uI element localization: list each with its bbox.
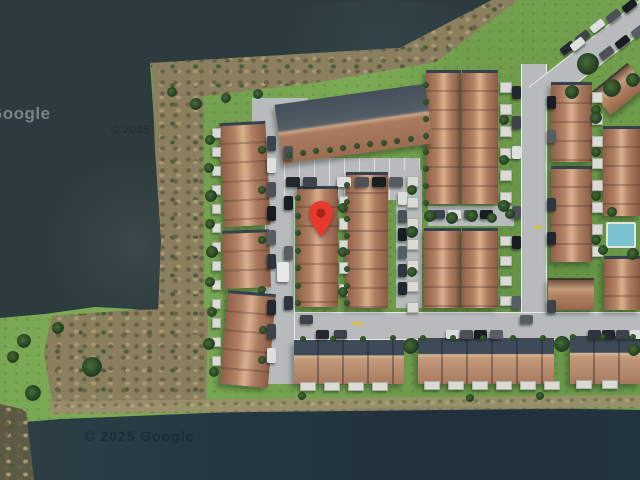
parked-car (303, 177, 317, 187)
parked-car (267, 230, 276, 245)
parked-car (512, 86, 521, 99)
utility-shed (592, 202, 603, 213)
palm-tree (591, 235, 601, 245)
parked-car (398, 264, 407, 277)
parked-car (398, 192, 407, 205)
palm-tree (499, 115, 509, 125)
palm-tree (17, 334, 31, 348)
parked-car (267, 348, 276, 363)
palm-tree (406, 226, 418, 238)
palm-tree (577, 53, 599, 75)
palm-tree (205, 219, 215, 229)
utility-shed (576, 380, 592, 389)
shrub (480, 335, 486, 341)
parked-car (547, 130, 556, 143)
parked-car (284, 246, 293, 260)
parked-car (547, 96, 556, 109)
utility-shed (592, 158, 603, 169)
palm-tree (259, 326, 267, 334)
shrub (295, 265, 301, 271)
palm-tree (253, 89, 263, 99)
parked-car (460, 330, 473, 339)
utility-shed (212, 261, 221, 271)
palm-tree (403, 338, 419, 354)
parked-car (267, 136, 276, 151)
shrub (423, 99, 429, 105)
utility-shed (592, 180, 603, 191)
townhouse-building (551, 166, 592, 262)
parked-car (398, 210, 407, 223)
palm-tree (7, 351, 19, 363)
parked-car (284, 296, 293, 310)
parked-car (588, 330, 601, 339)
parked-car (355, 177, 369, 187)
shrub (344, 182, 350, 188)
utility-shed (592, 224, 603, 235)
palm-tree (607, 207, 617, 217)
parked-car (616, 330, 629, 339)
palm-tree (627, 248, 639, 260)
townhouse-building (424, 228, 461, 308)
palm-tree (554, 336, 570, 352)
utility-shed (500, 276, 512, 286)
parked-car (547, 232, 556, 245)
palm-tree (167, 87, 177, 97)
palm-tree (207, 307, 217, 317)
townhouse-building (294, 340, 404, 384)
utility-shed (500, 296, 512, 306)
palm-tree (205, 277, 215, 287)
palm-tree (258, 186, 266, 194)
palm-tree (258, 286, 266, 294)
shrub (540, 335, 546, 341)
townhouse-building (603, 126, 640, 216)
shrub (300, 336, 306, 342)
parked-car (512, 146, 521, 159)
palm-tree (536, 392, 544, 400)
palm-tree (446, 212, 458, 224)
shrub (423, 116, 429, 122)
palm-tree (52, 322, 64, 334)
shrub (286, 152, 292, 158)
utility-shed (592, 92, 603, 103)
utility-shed (448, 381, 464, 390)
shrub (423, 82, 429, 88)
utility-shed (300, 382, 316, 391)
palm-tree (487, 213, 497, 223)
shrub (360, 336, 366, 342)
palm-tree (466, 210, 478, 222)
townhouse-building (462, 70, 498, 204)
shrub (510, 335, 516, 341)
utility-shed (407, 302, 419, 313)
parked-car (389, 177, 403, 187)
townhouse-building (462, 228, 498, 308)
parked-car (398, 246, 407, 259)
palm-tree (221, 93, 231, 103)
utility-shed (424, 381, 440, 390)
townhouse-building (219, 121, 270, 227)
palm-tree (205, 135, 215, 145)
utility-shed (592, 136, 603, 147)
shrub (423, 200, 429, 206)
palm-tree (258, 356, 266, 364)
road-marking (534, 226, 542, 229)
road-marking (352, 322, 362, 325)
utility-shed (212, 147, 221, 157)
shrub (295, 230, 301, 236)
palm-tree (424, 210, 436, 222)
parked-car (267, 300, 276, 315)
palm-tree (205, 190, 217, 202)
parked-car (284, 196, 293, 210)
parked-car (316, 330, 329, 339)
palm-tree (206, 246, 218, 258)
map-canvas[interactable]: Google © 2025 © 2025 Google (0, 0, 640, 480)
utility-shed (500, 236, 512, 246)
parked-car (547, 198, 556, 211)
shrub (295, 195, 301, 201)
copyright-watermark-partial: © 2025 (111, 124, 150, 136)
utility-shed (520, 381, 536, 390)
utility-shed (500, 104, 512, 115)
utility-shed (500, 170, 512, 181)
palm-tree (591, 147, 601, 157)
shrub (344, 199, 350, 205)
palm-tree (603, 79, 621, 97)
parked-car (267, 206, 276, 221)
utility-shed (407, 281, 419, 292)
parked-car (547, 300, 556, 313)
palm-tree (498, 200, 510, 212)
shrub (295, 283, 301, 289)
shrub (295, 248, 301, 254)
palm-tree (628, 344, 640, 356)
shrub (630, 334, 636, 340)
parked-car (512, 236, 521, 249)
palm-tree (466, 394, 474, 402)
utility-shed (602, 380, 618, 389)
palm-tree (591, 191, 601, 201)
utility-shed (212, 204, 221, 214)
palm-tree (598, 245, 608, 255)
parked-car (512, 296, 521, 309)
shrub (295, 300, 301, 306)
townhouse-building (604, 256, 640, 310)
palm-tree (204, 163, 214, 173)
shrub (354, 143, 360, 149)
parked-car (300, 315, 313, 324)
parked-car (267, 324, 276, 339)
utility-shed (348, 382, 364, 391)
utility-shed (407, 239, 419, 250)
parked-car (286, 177, 300, 187)
palm-tree (298, 392, 306, 400)
utility-shed (496, 381, 512, 390)
parked-car (520, 315, 533, 324)
shrub (344, 233, 350, 239)
utility-shed (372, 382, 388, 391)
google-logo-watermark: Google (0, 104, 51, 124)
parked-car (267, 158, 276, 173)
palm-tree (258, 146, 266, 154)
palm-tree (25, 385, 41, 401)
swimming-pool (606, 222, 636, 248)
parked-car (398, 282, 407, 295)
townhouse-building (418, 338, 554, 384)
palm-tree (258, 236, 266, 244)
utility-shed (500, 126, 512, 137)
utility-shed (472, 381, 488, 390)
townhouse-building (570, 336, 640, 384)
shrub (330, 336, 336, 342)
utility-shed (324, 382, 340, 391)
shrub (381, 140, 387, 146)
shrub (295, 213, 301, 219)
utility-shed (500, 256, 512, 266)
shrub (300, 150, 306, 156)
parked-car (267, 254, 276, 269)
shrub (327, 147, 333, 153)
palm-tree (590, 112, 602, 124)
parked-car (372, 177, 386, 187)
utility-shed (544, 381, 560, 390)
townhouse-building (346, 172, 388, 308)
parked-car (512, 116, 521, 129)
parked-car (267, 182, 276, 197)
palm-tree (407, 185, 417, 195)
palm-tree (190, 98, 202, 110)
utility-shed (500, 82, 512, 93)
palm-tree (499, 155, 509, 165)
shrub (423, 133, 429, 139)
parked-car (277, 262, 289, 282)
shrub (344, 216, 350, 222)
palm-tree (209, 367, 219, 377)
palm-tree (565, 85, 579, 99)
utility-shed (212, 356, 221, 366)
location-pin-icon[interactable] (309, 201, 333, 237)
palm-tree (203, 338, 215, 350)
palm-tree (82, 357, 102, 377)
shrub (408, 136, 414, 142)
parked-car (490, 330, 503, 339)
shrub (344, 300, 350, 306)
utility-shed (212, 318, 221, 328)
palm-tree (626, 73, 640, 87)
utility-shed (407, 197, 419, 208)
palm-tree (407, 267, 417, 277)
